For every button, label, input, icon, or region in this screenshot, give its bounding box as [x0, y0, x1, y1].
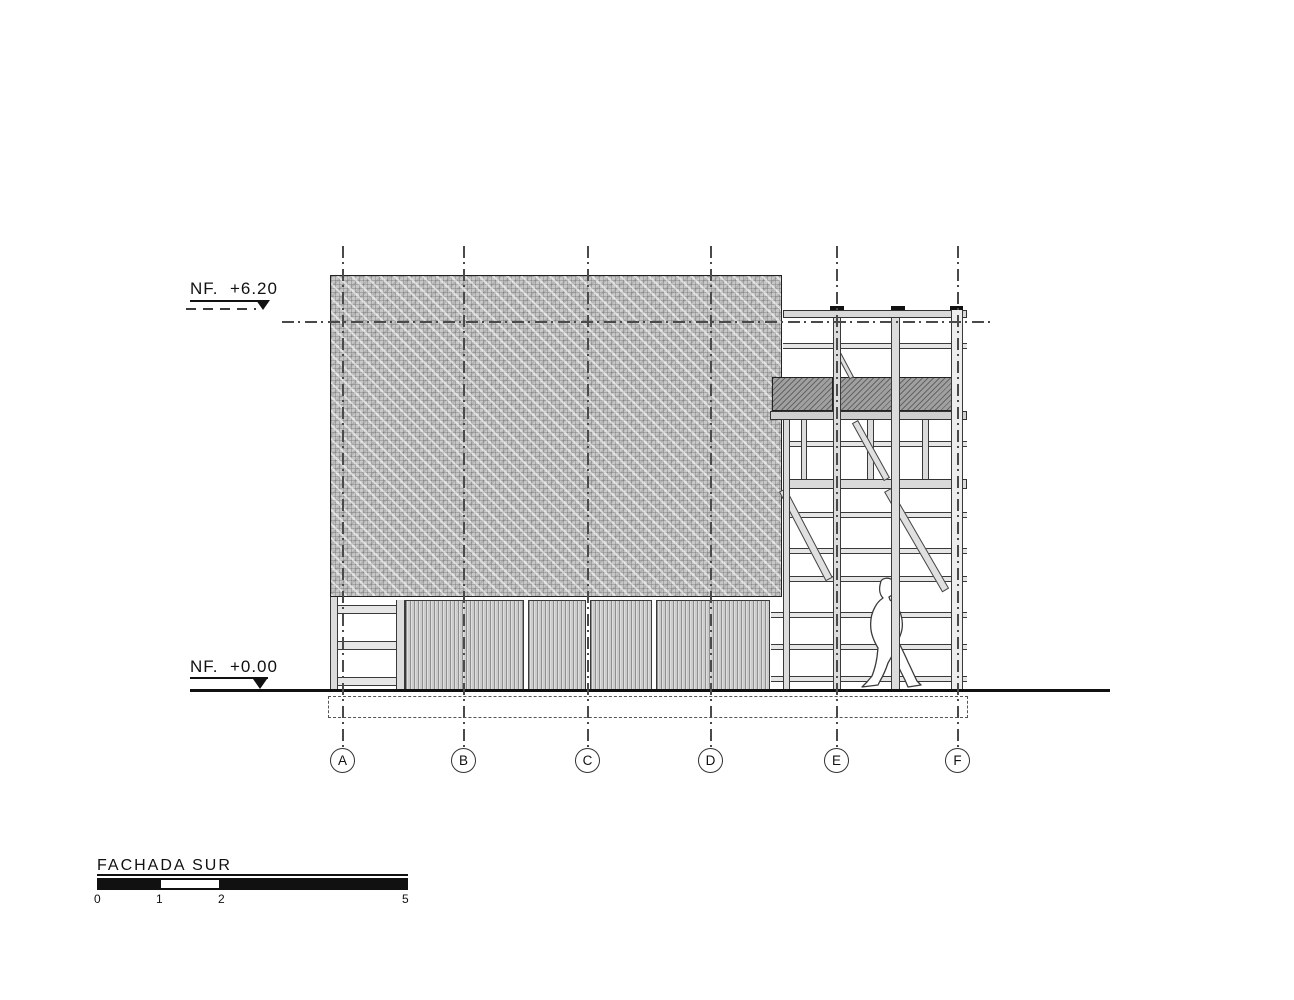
scale-tick: 5 — [402, 892, 409, 906]
grid-line-b — [463, 246, 465, 747]
grid-bubble-a: A — [330, 748, 355, 773]
frame-post — [891, 318, 900, 690]
grid-line-f — [957, 246, 959, 747]
level-marker-icon — [256, 300, 270, 310]
level-line-620 — [282, 321, 990, 323]
siding-panel — [405, 600, 524, 690]
floor-beam — [783, 479, 967, 489]
grid-line-d — [710, 246, 712, 747]
deck-slab — [770, 411, 967, 420]
scale-bar — [97, 878, 408, 890]
frame-post — [396, 600, 405, 690]
scale-segment-black — [97, 878, 159, 890]
frame-rail — [783, 343, 967, 349]
scale-tick: 1 — [156, 892, 163, 906]
level-leader-dashed — [186, 308, 256, 310]
balustrade-panel — [838, 377, 893, 411]
foundation-dashed-outline — [328, 696, 968, 718]
grid-bubble-c: C — [575, 748, 600, 773]
level-label-ground: NF. +0.00 — [190, 657, 278, 677]
balustrade-panel — [772, 377, 833, 411]
grid-axis-label: E — [832, 753, 841, 768]
balustrade-panel — [898, 377, 958, 411]
frame-rail — [783, 512, 967, 518]
scale-tick: 2 — [218, 892, 225, 906]
scale-segment-black — [221, 878, 408, 890]
beam-cleat — [891, 306, 905, 310]
grid-bubble-d: D — [698, 748, 723, 773]
grid-bubble-b: B — [451, 748, 476, 773]
top-beam — [783, 310, 967, 318]
frame-post — [330, 597, 338, 690]
grid-bubble-f: F — [945, 748, 970, 773]
grid-axis-label: C — [583, 753, 593, 768]
grid-bubble-e: E — [824, 748, 849, 773]
siding-panel — [528, 600, 586, 690]
scale-segment-white — [159, 878, 221, 890]
grid-axis-label: A — [338, 753, 347, 768]
level-marker-icon — [253, 679, 267, 689]
grid-axis-label: D — [706, 753, 716, 768]
frame-post — [922, 420, 929, 479]
grid-axis-label: F — [953, 753, 961, 768]
siding-panel — [656, 600, 770, 690]
frame-rail — [783, 441, 967, 447]
grid-line-a — [342, 246, 344, 747]
frame-post — [801, 420, 807, 479]
elevation-drawing-canvas: NF. +6.20 NF. +0.00 — [0, 0, 1294, 1000]
person-silhouette — [845, 577, 925, 690]
frame-post — [783, 420, 790, 690]
scale-tick: 0 — [94, 892, 101, 906]
level-label-top: NF. +6.20 — [190, 279, 278, 299]
grid-axis-label: B — [459, 753, 468, 768]
grid-line-c — [587, 246, 589, 747]
siding-panel — [590, 600, 652, 690]
drawing-title: FACHADA SUR — [97, 857, 232, 875]
grid-line-e — [836, 246, 838, 747]
facade-woven-panel — [330, 275, 782, 597]
ground-line — [190, 689, 1110, 692]
